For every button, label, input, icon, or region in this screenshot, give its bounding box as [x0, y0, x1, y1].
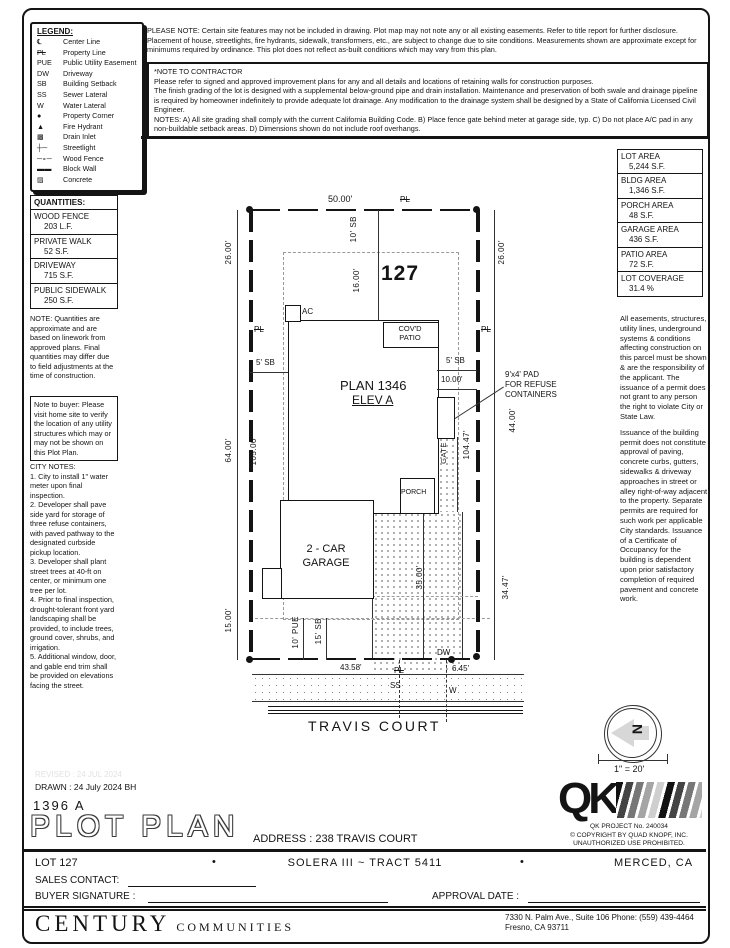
- area-label: PATIO AREA: [621, 250, 699, 260]
- city-notes-title: CITY NOTES:: [30, 462, 116, 472]
- public-sidewalk: [252, 674, 524, 702]
- agency-notes: All easements, structures, utility lines…: [620, 314, 708, 604]
- dimension-line-5sb-left: [250, 372, 288, 373]
- dw-label: DW: [437, 648, 450, 658]
- property-line-icon: PL: [37, 48, 63, 59]
- legend-label: Block Wall: [63, 164, 96, 175]
- contractor-paragraph: Please refer to signed and approved impr…: [154, 77, 702, 87]
- dimension-line-10ft: [437, 389, 477, 390]
- revised-line: REVISED : 24 JUL 2024: [35, 770, 122, 780]
- legend-label: Property Corner: [63, 111, 114, 122]
- qk-copyright: © COPYRIGHT BY QUAD KNOPF, INC.: [553, 832, 705, 841]
- fire-hydrant-icon: ▲: [37, 122, 63, 133]
- brand-century: CENTURY: [35, 911, 170, 937]
- legend-row: ▨Concrete: [37, 175, 137, 186]
- area-label: LOT COVERAGE: [621, 274, 699, 284]
- quantity-item: DRIVEWAY715 S.F.: [30, 258, 118, 284]
- area-value: 31.4 %: [621, 284, 699, 294]
- approval-date-label: APPROVAL DATE :: [432, 891, 519, 902]
- dim-16: 16.00': [352, 268, 361, 293]
- scale-bar-tick: [598, 754, 599, 764]
- property-line-south: [250, 658, 478, 660]
- legend-row: PUEPublic Utility Easement: [37, 58, 137, 69]
- pl-label-south: PL: [394, 666, 404, 676]
- builder-brand: CENTURY COMMUNITIES: [35, 911, 294, 937]
- buyer-signature-label: BUYER SIGNATURE :: [35, 891, 135, 902]
- legend-label: Driveway: [63, 69, 93, 80]
- dim-26-east: 26.00': [497, 240, 506, 265]
- scale-bar-tick: [667, 754, 668, 764]
- dimension-line-west: [237, 210, 238, 660]
- quantity-item: PRIVATE WALK52 S.F.: [30, 234, 118, 260]
- gate-label: GATE: [439, 442, 448, 464]
- legend-row: PLProperty Line: [37, 48, 137, 59]
- area-value: 5,244 S.F.: [621, 162, 699, 172]
- buyer-note-box: Note to buyer: Please visit home site to…: [30, 396, 118, 461]
- quantities-note: NOTE: Quantities are approximate and are…: [30, 314, 115, 381]
- legend-label: Building Setback: [63, 79, 117, 90]
- block-wall-icon: ▬▬: [37, 164, 63, 175]
- legend-row: ▲Fire Hydrant: [37, 122, 137, 133]
- dim-5sb-right: 5' SB: [446, 356, 465, 366]
- legend-label: Public Utility Easement: [63, 58, 137, 69]
- dim-35: 35.00': [415, 565, 424, 590]
- area-label: GARAGE AREA: [621, 225, 699, 235]
- legend-label: Center Line: [63, 37, 100, 48]
- streetlight-icon: ┼─: [37, 143, 63, 154]
- legend-row: ▩Drain Inlet: [37, 132, 137, 143]
- meter-pad: [262, 568, 282, 599]
- titleblock-divider: [24, 849, 706, 852]
- legend-label: Streetlight: [63, 143, 95, 154]
- area-item: PATIO AREA72 S.F.: [617, 247, 703, 273]
- water-label: W: [449, 686, 457, 696]
- dim-26-west: 26.00': [224, 240, 233, 265]
- refuse-pad-outline: [437, 397, 455, 439]
- dim-3447: 34.47': [501, 575, 510, 600]
- buyer-signature-line: [148, 902, 388, 903]
- area-label: PORCH AREA: [621, 201, 699, 211]
- quantity-label: PRIVATE WALK: [34, 237, 114, 247]
- sewer-label: SS: [390, 681, 401, 691]
- area-item: PORCH AREA48 S.F.: [617, 198, 703, 224]
- dim-5sb-left: 5' SB: [256, 358, 275, 368]
- office-address-line2: Fresno, CA 93711: [505, 923, 694, 933]
- property-line-east: [476, 210, 480, 657]
- property-corner-dot: [473, 653, 480, 660]
- sales-contact-signature-line: [128, 886, 256, 887]
- bullet-separator: •: [520, 856, 524, 868]
- quantity-item: WOOD FENCE203 L.F.: [30, 209, 118, 235]
- office-address-line1: 7330 N. Palm Ave., Suite 106 Phone: (559…: [505, 913, 694, 923]
- office-address: 7330 N. Palm Ave., Suite 106 Phone: (559…: [505, 913, 694, 933]
- setback-symbol: SB: [37, 79, 63, 90]
- approval-date-line: [528, 902, 700, 903]
- quantity-label: DRIVEWAY: [34, 261, 114, 271]
- qk-logo: QK: [558, 779, 616, 819]
- sheet-title: PLOT PLAN: [30, 810, 240, 844]
- qk-unauthorized: UNAUTHORIZED USE PROHIBITED.: [553, 840, 705, 849]
- legend-label: Fire Hydrant: [63, 122, 103, 133]
- contractor-paragraph: NOTES: A) All site grading shall comply …: [154, 115, 702, 134]
- street-name: TRAVIS COURT: [308, 718, 441, 734]
- city-label: MERCED, CA: [614, 857, 693, 869]
- dim-4358: 43.58': [340, 663, 362, 673]
- area-value: 436 S.F.: [621, 235, 699, 245]
- area-item: LOT AREA5,244 S.F.: [617, 149, 703, 175]
- dim-64: 64.00': [224, 438, 233, 463]
- header-divider-line: [141, 136, 707, 139]
- quantity-value: 715 S.F.: [34, 271, 114, 281]
- agency-note-paragraph: All easements, structures, utility lines…: [620, 314, 708, 422]
- contractor-paragraph: The finish grading of the lot is designe…: [154, 86, 702, 115]
- quantity-label: WOOD FENCE: [34, 212, 114, 222]
- property-corner-dot: [473, 206, 480, 213]
- legend-label: Property Line: [63, 48, 106, 59]
- dimension-line-front-sb: [378, 210, 379, 320]
- area-item: LOT COVERAGE31.4 %: [617, 271, 703, 297]
- legend-row: WWater Lateral: [37, 101, 137, 112]
- city-notes-body: 1. City to install 1" water meter upon f…: [30, 472, 116, 691]
- tract-label: SOLERA III ~ TRACT 5411: [265, 857, 465, 869]
- dimension-line-15sb: [326, 618, 327, 660]
- city-notes: CITY NOTES: 1. City to install 1" water …: [30, 462, 116, 690]
- property-line-north: [250, 209, 478, 211]
- property-corner-dot: [246, 656, 253, 663]
- legend-label: Sewer Lateral: [63, 90, 107, 101]
- sewer-symbol: SS: [37, 90, 63, 101]
- dim-15sb: 15' SB: [314, 618, 323, 644]
- dimension-line-pue: [303, 618, 304, 660]
- driveway-symbol: DW: [37, 69, 63, 80]
- ac-label: AC: [302, 307, 313, 317]
- dimension-line-5sb-right: [437, 370, 477, 371]
- area-value: 1,346 S.F.: [621, 186, 699, 196]
- water-lateral-line: [446, 660, 447, 722]
- north-arrow: N: [604, 705, 662, 763]
- property-line-west: [249, 210, 253, 660]
- qk-info: QK PROJECT No. 240034 © COPYRIGHT BY QUA…: [553, 823, 705, 849]
- contractor-title: *NOTE TO CONTRACTOR: [154, 67, 702, 77]
- scale-label: 1" = 20': [614, 764, 644, 775]
- legend-label: Wood Fence: [63, 154, 104, 165]
- quantities-panel: QUANTITIES: WOOD FENCE203 L.F. PRIVATE W…: [30, 196, 118, 309]
- area-label: BLDG AREA: [621, 176, 699, 186]
- sales-contact-label: SALES CONTACT:: [35, 875, 119, 886]
- qk-logo-stripes: [616, 782, 702, 818]
- dim-645: 6.45': [452, 664, 469, 674]
- dim-10sb: 10' SB: [349, 216, 358, 242]
- lot-label: LOT 127: [35, 857, 78, 869]
- legend-row: ▬▬Block Wall: [37, 164, 137, 175]
- drain-inlet-icon: ▩: [37, 132, 63, 143]
- street-edge-lines: [268, 706, 523, 714]
- dim-15: 15.00': [224, 608, 233, 633]
- porch-outline: [400, 478, 435, 514]
- legend-row: ●Property Corner: [37, 111, 137, 122]
- dim-44: 44.00': [508, 408, 517, 433]
- scale-bar: [598, 760, 668, 761]
- legend-row: SBBuilding Setback: [37, 79, 137, 90]
- legend-title: LEGEND:: [37, 27, 137, 36]
- area-value: 72 S.F.: [621, 260, 699, 270]
- property-corner-dot: [246, 206, 253, 213]
- area-table: LOT AREA5,244 S.F. BLDG AREA1,346 S.F. P…: [617, 150, 703, 297]
- legend-row: ┼─Streetlight: [37, 143, 137, 154]
- legend-label: Water Lateral: [63, 101, 106, 112]
- plan-name: PLAN 1346: [340, 378, 407, 393]
- front-setback-dashed: [250, 618, 490, 619]
- pl-label-east: PL: [481, 325, 491, 335]
- pl-label-north: PL: [400, 195, 410, 205]
- ac-pad-outline: [285, 305, 301, 322]
- quantity-value: 203 L.F.: [34, 222, 114, 232]
- area-value: 48 S.F.: [621, 211, 699, 221]
- bullet-separator: •: [212, 856, 216, 868]
- covered-patio-label: COV'D PATIO: [391, 324, 429, 342]
- quantity-label: PUBLIC SIDEWALK: [34, 286, 114, 296]
- porch-label: PORCH: [401, 489, 426, 496]
- property-corner-icon: ●: [37, 111, 63, 122]
- agency-note-paragraph: Issuance of the building permit does not…: [620, 428, 708, 604]
- drawn-line: DRAWN : 24 July 2024 BH: [35, 782, 136, 792]
- plot-plan-sheet: LEGEND: ℄Center Line PLProperty Line PUE…: [0, 0, 730, 948]
- north-label: N: [629, 724, 645, 734]
- garage-label: 2 - CAR GARAGE: [296, 542, 356, 570]
- dimension-line-east: [494, 210, 495, 660]
- pue-symbol: PUE: [37, 58, 63, 69]
- pl-label-west: PL: [254, 325, 264, 335]
- dim-105: 105.00': [249, 436, 258, 466]
- legend-label: Concrete: [63, 175, 92, 186]
- brand-communities: COMMUNITIES: [176, 920, 294, 935]
- qk-project-number: QK PROJECT No. 240034: [553, 823, 705, 832]
- note-to-contractor-box: *NOTE TO CONTRACTOR Please refer to sign…: [147, 62, 709, 139]
- legend-row: DWDriveway: [37, 69, 137, 80]
- legend-row: ℄Center Line: [37, 37, 137, 48]
- elevation-label: ELEV A: [352, 393, 393, 407]
- dim-lot-width: 50.00': [328, 194, 352, 205]
- legend-row: SSSewer Lateral: [37, 90, 137, 101]
- area-item: GARAGE AREA436 S.F.: [617, 222, 703, 248]
- quantity-item: PUBLIC SIDEWALK250 S.F.: [30, 283, 118, 309]
- lot-number: 127: [381, 262, 419, 286]
- concrete-icon: ▨: [37, 175, 63, 186]
- water-symbol: W: [37, 101, 63, 112]
- wood-fence-icon: ─∘─: [37, 154, 63, 165]
- refuse-callout-text: 9'x4' PAD FOR REFUSE CONTAINERS: [505, 370, 557, 400]
- area-item: BLDG AREA1,346 S.F.: [617, 173, 703, 199]
- area-label: LOT AREA: [621, 152, 699, 162]
- quantity-value: 250 S.F.: [34, 296, 114, 306]
- garage-line-dashed: [372, 596, 478, 597]
- dim-10: 10.00': [441, 375, 463, 385]
- legend-box: LEGEND: ℄Center Line PLProperty Line PUE…: [30, 22, 144, 192]
- legend-label: Drain Inlet: [63, 132, 96, 143]
- address-line: ADDRESS : 238 TRAVIS COURT: [253, 833, 417, 845]
- quantity-value: 52 S.F.: [34, 247, 114, 257]
- dim-104: 104.47': [462, 430, 471, 460]
- dim-10pue: 10' PUE: [291, 616, 300, 649]
- please-note-text: PLEASE NOTE: Certain site features may n…: [147, 26, 705, 55]
- legend-row: ─∘─Wood Fence: [37, 154, 137, 165]
- centerline-icon: ℄: [37, 37, 63, 48]
